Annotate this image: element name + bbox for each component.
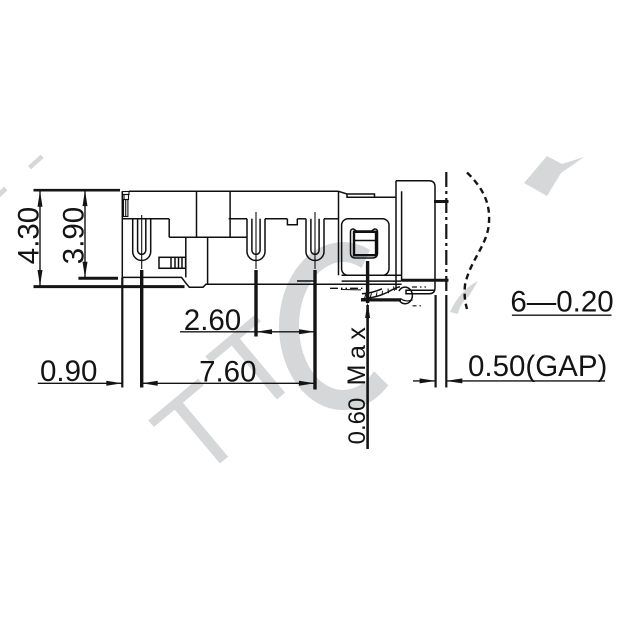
svg-text:3.90: 3.90 xyxy=(58,207,91,264)
svg-text:Max: Max xyxy=(343,322,371,386)
svg-text:0.50(GAP): 0.50(GAP) xyxy=(468,350,607,383)
svg-text:4.30: 4.30 xyxy=(13,207,46,264)
svg-text:0.60: 0.60 xyxy=(344,398,371,445)
svg-text:6—0.20: 6—0.20 xyxy=(510,286,613,319)
svg-text:0.90: 0.90 xyxy=(40,355,97,388)
svg-text:7.60: 7.60 xyxy=(199,356,256,389)
svg-text:2.60: 2.60 xyxy=(184,304,241,337)
